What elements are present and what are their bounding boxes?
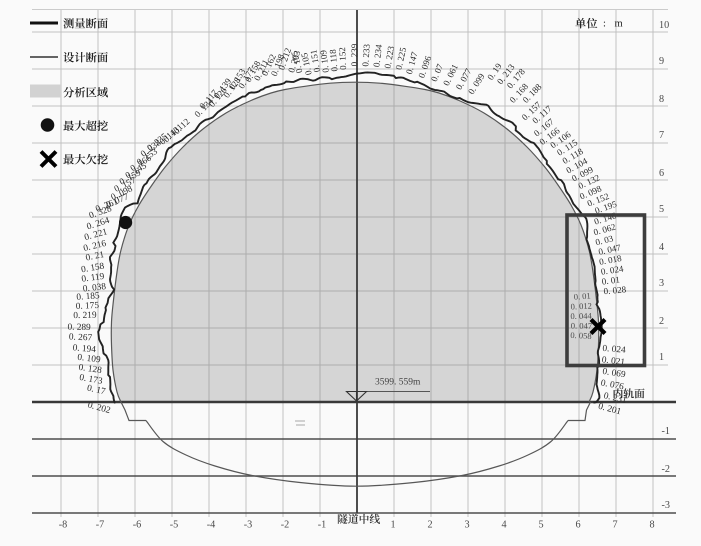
svg-text:2: 2 xyxy=(427,520,432,531)
svg-text:4: 4 xyxy=(659,242,664,253)
svg-text:0. 194: 0. 194 xyxy=(72,343,96,355)
svg-text:3599. 559m: 3599. 559m xyxy=(375,378,421,388)
svg-text:8: 8 xyxy=(659,94,664,105)
svg-text:1: 1 xyxy=(659,352,664,363)
svg-text:0. 058: 0. 058 xyxy=(570,330,592,341)
svg-text:-1: -1 xyxy=(662,426,671,437)
svg-text:-2: -2 xyxy=(281,520,290,531)
svg-text:-8: -8 xyxy=(59,520,68,531)
svg-text:0. 233: 0. 233 xyxy=(360,43,371,67)
svg-text:0. 028: 0. 028 xyxy=(603,284,627,296)
svg-text:-6: -6 xyxy=(133,520,142,531)
svg-text:2: 2 xyxy=(659,316,664,327)
svg-text:7: 7 xyxy=(659,130,664,141)
svg-text:-5: -5 xyxy=(170,520,179,531)
svg-text:7: 7 xyxy=(612,520,617,531)
svg-text:1: 1 xyxy=(390,520,395,531)
svg-text:-4: -4 xyxy=(207,520,216,531)
svg-text:3: 3 xyxy=(464,520,469,531)
svg-text:-3: -3 xyxy=(662,500,671,511)
svg-text:0. 024: 0. 024 xyxy=(602,344,626,356)
svg-text:0. 044: 0. 044 xyxy=(570,311,592,321)
svg-text:0. 239: 0. 239 xyxy=(349,43,359,66)
svg-text:-1: -1 xyxy=(318,520,327,531)
svg-text:5: 5 xyxy=(659,204,664,215)
svg-text:9: 9 xyxy=(659,56,664,67)
svg-text:0. 219: 0. 219 xyxy=(73,311,97,321)
svg-text:-3: -3 xyxy=(244,520,253,531)
svg-text:-2: -2 xyxy=(662,464,671,475)
svg-text:3: 3 xyxy=(659,278,664,289)
svg-text:4: 4 xyxy=(501,520,506,531)
svg-text:0. 289: 0. 289 xyxy=(67,323,91,333)
svg-text:0. 267: 0. 267 xyxy=(69,332,93,343)
svg-text:0. 152: 0. 152 xyxy=(337,47,348,71)
svg-text:6: 6 xyxy=(659,168,664,179)
svg-text:6: 6 xyxy=(575,520,580,531)
svg-text:8: 8 xyxy=(649,520,654,531)
svg-text:: m: : m xyxy=(603,19,626,30)
svg-text:10: 10 xyxy=(659,20,669,31)
svg-text:5: 5 xyxy=(538,520,543,531)
svg-text:-7: -7 xyxy=(96,520,105,531)
